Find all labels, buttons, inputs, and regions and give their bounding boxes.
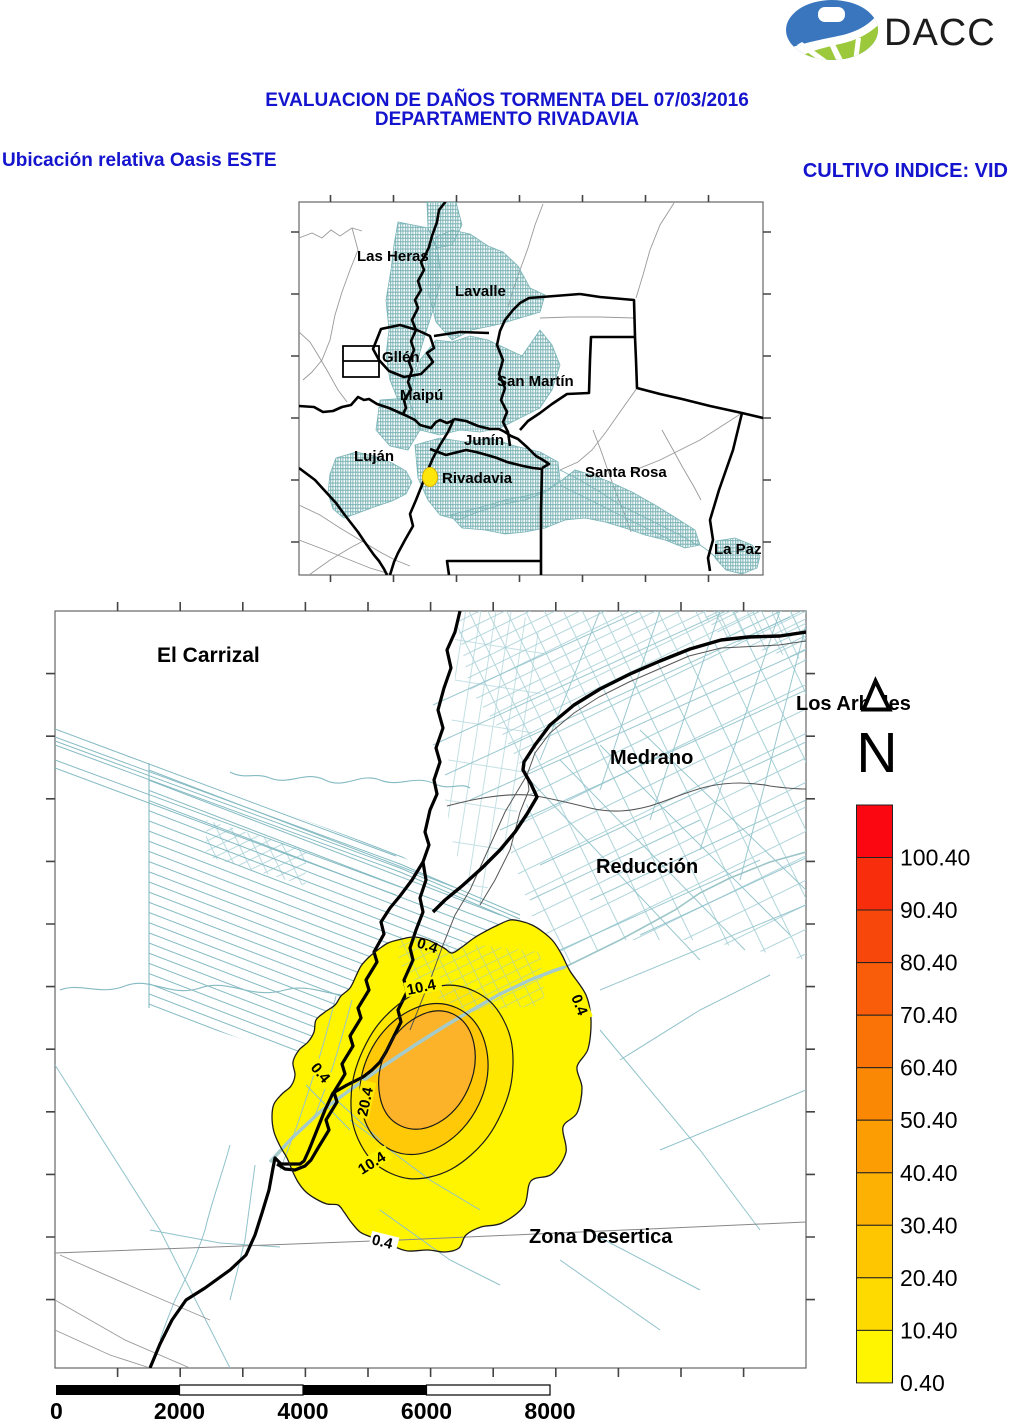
svg-text:Reducción: Reducción bbox=[596, 856, 698, 878]
svg-text:2000: 2000 bbox=[154, 1398, 205, 1423]
svg-text:El Carrizal: El Carrizal bbox=[157, 644, 260, 667]
svg-text:Luján: Luján bbox=[354, 448, 394, 465]
svg-text:Gllén: Gllén bbox=[382, 349, 420, 366]
svg-text:Los Arboles: Los Arboles bbox=[796, 693, 911, 715]
svg-text:70.40: 70.40 bbox=[900, 1002, 958, 1028]
svg-text:8000: 8000 bbox=[524, 1398, 575, 1423]
svg-text:6000: 6000 bbox=[401, 1398, 452, 1423]
svg-text:Medrano: Medrano bbox=[610, 747, 693, 769]
svg-text:EVALUACION DE DAÑOS TORMENTA D: EVALUACION DE DAÑOS TORMENTA DEL 07/03/2… bbox=[265, 89, 749, 111]
svg-text:DEPARTAMENTO RIVADAVIA: DEPARTAMENTO RIVADAVIA bbox=[375, 109, 640, 130]
svg-text:20.40: 20.40 bbox=[900, 1265, 958, 1291]
svg-text:Maipú: Maipú bbox=[400, 387, 443, 404]
svg-text:40.40: 40.40 bbox=[900, 1160, 958, 1186]
svg-text:N: N bbox=[856, 721, 897, 785]
svg-text:Santa Rosa: Santa Rosa bbox=[585, 464, 667, 481]
svg-text:Zona Desertica: Zona Desertica bbox=[529, 1226, 673, 1248]
svg-text:Ubicación relativa Oasis ESTE: Ubicación relativa Oasis ESTE bbox=[2, 150, 277, 171]
svg-text:Lavalle: Lavalle bbox=[455, 283, 506, 300]
svg-text:4000: 4000 bbox=[277, 1398, 328, 1423]
svg-text:100.40: 100.40 bbox=[900, 845, 970, 871]
svg-text:90.40: 90.40 bbox=[900, 897, 958, 923]
svg-text:0: 0 bbox=[50, 1398, 63, 1423]
svg-text:Rivadavia: Rivadavia bbox=[442, 470, 513, 487]
svg-text:La Paz: La Paz bbox=[714, 541, 762, 558]
svg-text:Las Heras: Las Heras bbox=[357, 248, 429, 265]
svg-text:0.40: 0.40 bbox=[900, 1370, 945, 1396]
svg-text:San Martín: San Martín bbox=[497, 373, 574, 390]
svg-text:Junín: Junín bbox=[464, 432, 504, 449]
svg-text:10.40: 10.40 bbox=[900, 1317, 958, 1343]
svg-text:80.40: 80.40 bbox=[900, 950, 958, 976]
svg-text:60.40: 60.40 bbox=[900, 1055, 958, 1081]
svg-text:30.40: 30.40 bbox=[900, 1212, 958, 1238]
svg-text:CULTIVO INDICE: VID: CULTIVO INDICE: VID bbox=[803, 160, 1008, 182]
svg-text:50.40: 50.40 bbox=[900, 1107, 958, 1133]
svg-text:DACC: DACC bbox=[884, 12, 996, 54]
